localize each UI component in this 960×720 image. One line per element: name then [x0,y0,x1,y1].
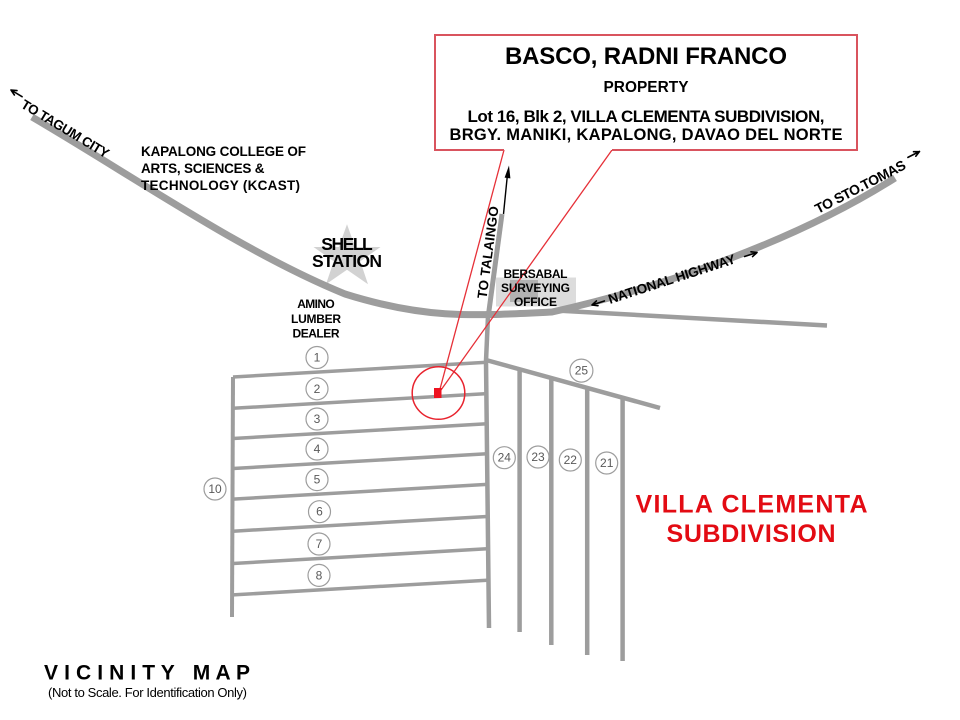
svg-text:LUMBER: LUMBER [291,312,341,326]
svg-text:PROPERTY: PROPERTY [604,79,690,96]
svg-text:V I C I N I T Y M A P: V I C I N I T Y M A P [44,662,250,685]
svg-text:2: 2 [314,382,321,396]
svg-text:STATION: STATION [312,251,382,271]
svg-text:AMINO: AMINO [297,297,335,311]
svg-text:OFFICE: OFFICE [514,295,557,309]
svg-text:25: 25 [575,364,589,378]
svg-text:8: 8 [316,568,323,582]
svg-text:(Not to Scale. For Identificat: (Not to Scale. For Identification Only) [48,685,247,700]
svg-text:KAPALONG COLLEGE OF: KAPALONG COLLEGE OF [141,144,306,159]
svg-text:Lot 16, Blk 2, VILLA CLEMENTA: Lot 16, Blk 2, VILLA CLEMENTA SUBDIVISIO… [468,107,825,126]
svg-text:7: 7 [316,537,323,551]
svg-text:TECHNOLOGY (KCAST): TECHNOLOGY (KCAST) [141,178,300,193]
svg-text:21: 21 [600,456,614,470]
svg-text:22: 22 [564,453,578,467]
svg-text:3: 3 [314,412,321,426]
svg-text:SURVEYING: SURVEYING [501,281,570,295]
svg-text:4: 4 [314,442,321,456]
svg-text:DEALER: DEALER [293,326,340,340]
svg-text:10: 10 [208,482,222,496]
svg-text:5: 5 [314,473,321,487]
svg-text:24: 24 [498,451,512,465]
svg-text:23: 23 [531,450,545,464]
svg-text:ARTS, SCIENCES &: ARTS, SCIENCES & [141,161,265,176]
svg-text:1: 1 [314,351,321,365]
svg-text:BASCO, RADNI FRANCO: BASCO, RADNI FRANCO [505,43,787,70]
svg-text:SUBDIVISION: SUBDIVISION [667,520,836,548]
svg-text:BRGY. MANIKI, KAPALONG, DAVAO: BRGY. MANIKI, KAPALONG, DAVAO DEL NORTE [450,126,843,144]
svg-text:VILLA CLEMENTA: VILLA CLEMENTA [636,491,868,519]
svg-text:6: 6 [316,505,323,519]
svg-text:BERSABAL: BERSABAL [504,267,568,281]
